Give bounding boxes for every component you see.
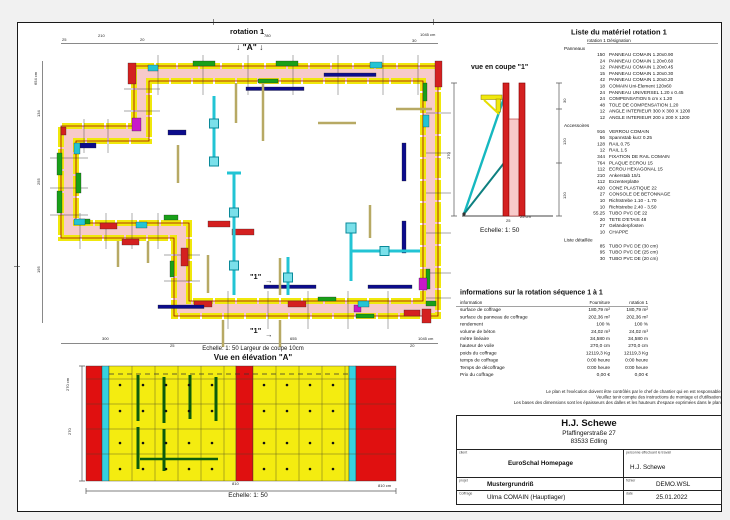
info-table-header: information Fourniture rotation 1: [456, 299, 648, 307]
info-row: Temps de décoffrage0:00 heure0:00 heure: [456, 364, 648, 371]
info-row: poids du coffrage12119,3 Kg12119,3 Kg: [456, 350, 648, 357]
wall-fill: [61, 66, 438, 316]
client-value: EuroSchal Homepage: [457, 460, 624, 467]
material-item: 12ANGLE INTERIEUR 200 x 200 X 1200: [564, 114, 723, 120]
company-name: H.J. Schewe: [457, 418, 721, 430]
column-header: Fourniture: [572, 299, 610, 306]
client-cell: client EuroSchal Homepage: [457, 450, 624, 477]
worker-label: personne effectuant le travail: [626, 451, 671, 455]
dim-label: 210: [98, 34, 105, 38]
material-list-title: Liste du matériel rotation 1: [571, 28, 723, 37]
dim-total-label: 654 cm: [34, 72, 38, 85]
info-row: mètre linéaire34,580 m34,580 m: [456, 336, 648, 343]
title-block-company: H.J. Schewe Pfaffingerstraße 27 83533 Ed…: [457, 416, 721, 450]
dim-label: 25 cm: [520, 215, 531, 219]
formwork-accessories: [57, 61, 442, 323]
push-pull-props: [210, 96, 421, 295]
info-row: surface du panneau de coffrage202,36 m²2…: [456, 314, 648, 321]
formwork-panels-inner: [76, 81, 423, 301]
dim-label: 134: [37, 110, 41, 117]
dim-line-top: [61, 43, 438, 44]
panel-left: [503, 83, 509, 216]
info-row: hauteur de voile270,0 cm270,0 cm: [456, 343, 648, 350]
info-row: Prix du coffrage0,00 €0,00 €: [456, 372, 648, 379]
column-header: information: [460, 299, 572, 306]
column-header: rotation 1: [610, 299, 648, 306]
file-cell: fichier DEMO.WSL: [624, 478, 721, 490]
info-table: informations sur la rotation séquence 1 …: [456, 284, 648, 388]
dim-label: 30: [412, 39, 416, 43]
dim-label: 195: [37, 266, 41, 273]
elevation-drawing: [76, 359, 406, 507]
material-list: Liste du matériel rotation 1 rotation 1 …: [564, 26, 723, 282]
info-row: volume de béton24,02 m³24,02 m³: [456, 328, 648, 335]
file-value: DEMO.WSL: [656, 481, 690, 488]
formwork-label: Coffrage: [459, 492, 472, 496]
wall-outline-inner: [76, 81, 423, 301]
panel-right: [519, 83, 525, 216]
worker-value: H.J. Schewe: [630, 464, 665, 471]
material-item: 10CHAPPE: [564, 229, 723, 235]
frame-tick: [14, 266, 20, 267]
wall-section: [509, 119, 519, 216]
dim-label: 25: [62, 38, 66, 42]
frame-tick: [433, 19, 434, 25]
formwork-value: Ulma COMAIN (Hauptlager): [487, 494, 565, 501]
dim-label: 270 cm: [66, 378, 70, 391]
company-street: Pfaffingerstraße 27: [457, 430, 721, 438]
dim-label: 270: [447, 152, 451, 159]
info-table-rows: surface de coffrage180,79 m²180,79 m²sur…: [456, 307, 648, 379]
date-cell: date 25.01.2022: [624, 491, 721, 504]
plan-title: rotation 1: [230, 27, 264, 36]
plan-drawing: [48, 53, 468, 353]
section-drawing: [456, 61, 568, 239]
app-canvas: { "plan": { "title": "rotation 1", "mark…: [0, 0, 730, 520]
formwork-cell: Coffrage Ulma COMAIN (Hauptlager): [457, 491, 624, 504]
dim-line-left: [42, 61, 43, 323]
company-city: 83533 Edling: [457, 438, 721, 446]
bracket: [496, 99, 501, 112]
dim-label: 255: [37, 178, 41, 185]
info-table-title: informations sur la rotation séquence 1 …: [460, 288, 648, 296]
brace-short: [464, 163, 504, 214]
frame-tick: [213, 19, 214, 25]
client-label: client: [459, 451, 467, 455]
material-item: 30TUBO PVC DE (20 cm): [564, 255, 723, 261]
title-block: H.J. Schewe Pfaffingerstraße 27 83533 Ed…: [456, 415, 722, 505]
file-label: fichier: [626, 479, 635, 483]
project-value: Mustergrundriß: [487, 481, 534, 488]
info-row: surface de coffrage180,79 m²180,79 m²: [456, 307, 648, 314]
dim-label: 780: [264, 34, 271, 38]
dim-label: 810: [232, 482, 239, 486]
section-scale: Echelle: 1: 50: [480, 227, 519, 234]
plan-caption: Echelle: 1: 50 Largeur de coupe 10cm: [138, 346, 368, 352]
disclaimer-line: Les bases des dimensions sont les épaiss…: [454, 400, 722, 406]
worker-cell: personne effectuant le travail H.J. Sche…: [624, 450, 721, 477]
dim-label: 25: [506, 219, 510, 223]
info-row: temps de coffrage0:00 heure0:00 heure: [456, 357, 648, 364]
info-row: rendement100 %100 %: [456, 321, 648, 328]
date-label: date: [626, 492, 633, 496]
project-label: projet: [459, 479, 468, 483]
dim-label: 20: [140, 38, 144, 42]
formwork-panels-outer: [61, 66, 438, 316]
dim-total-label: 1045 cm: [420, 33, 435, 37]
material-list-items: Panneaux150PANNEAU COMAIN 1.20x0.9024PAN…: [564, 46, 723, 262]
material-list-header: rotation 1 Désignation: [587, 38, 718, 44]
disclaimer: Le plan et l'exécution doivent être cont…: [454, 389, 722, 413]
dim-label: 810 cm: [378, 484, 391, 488]
wall-outline-outer: [61, 66, 438, 316]
project-cell: projet Mustergrundriß: [457, 478, 624, 490]
drawing-sheet: rotation 1 ↓ "A" ↓ 25 210 20 780 30 1045…: [17, 22, 722, 512]
date-value: 25.01.2022: [656, 494, 688, 501]
dim-label: 270: [68, 428, 72, 435]
elevation-scale: Echelle: 1: 50: [168, 492, 328, 499]
